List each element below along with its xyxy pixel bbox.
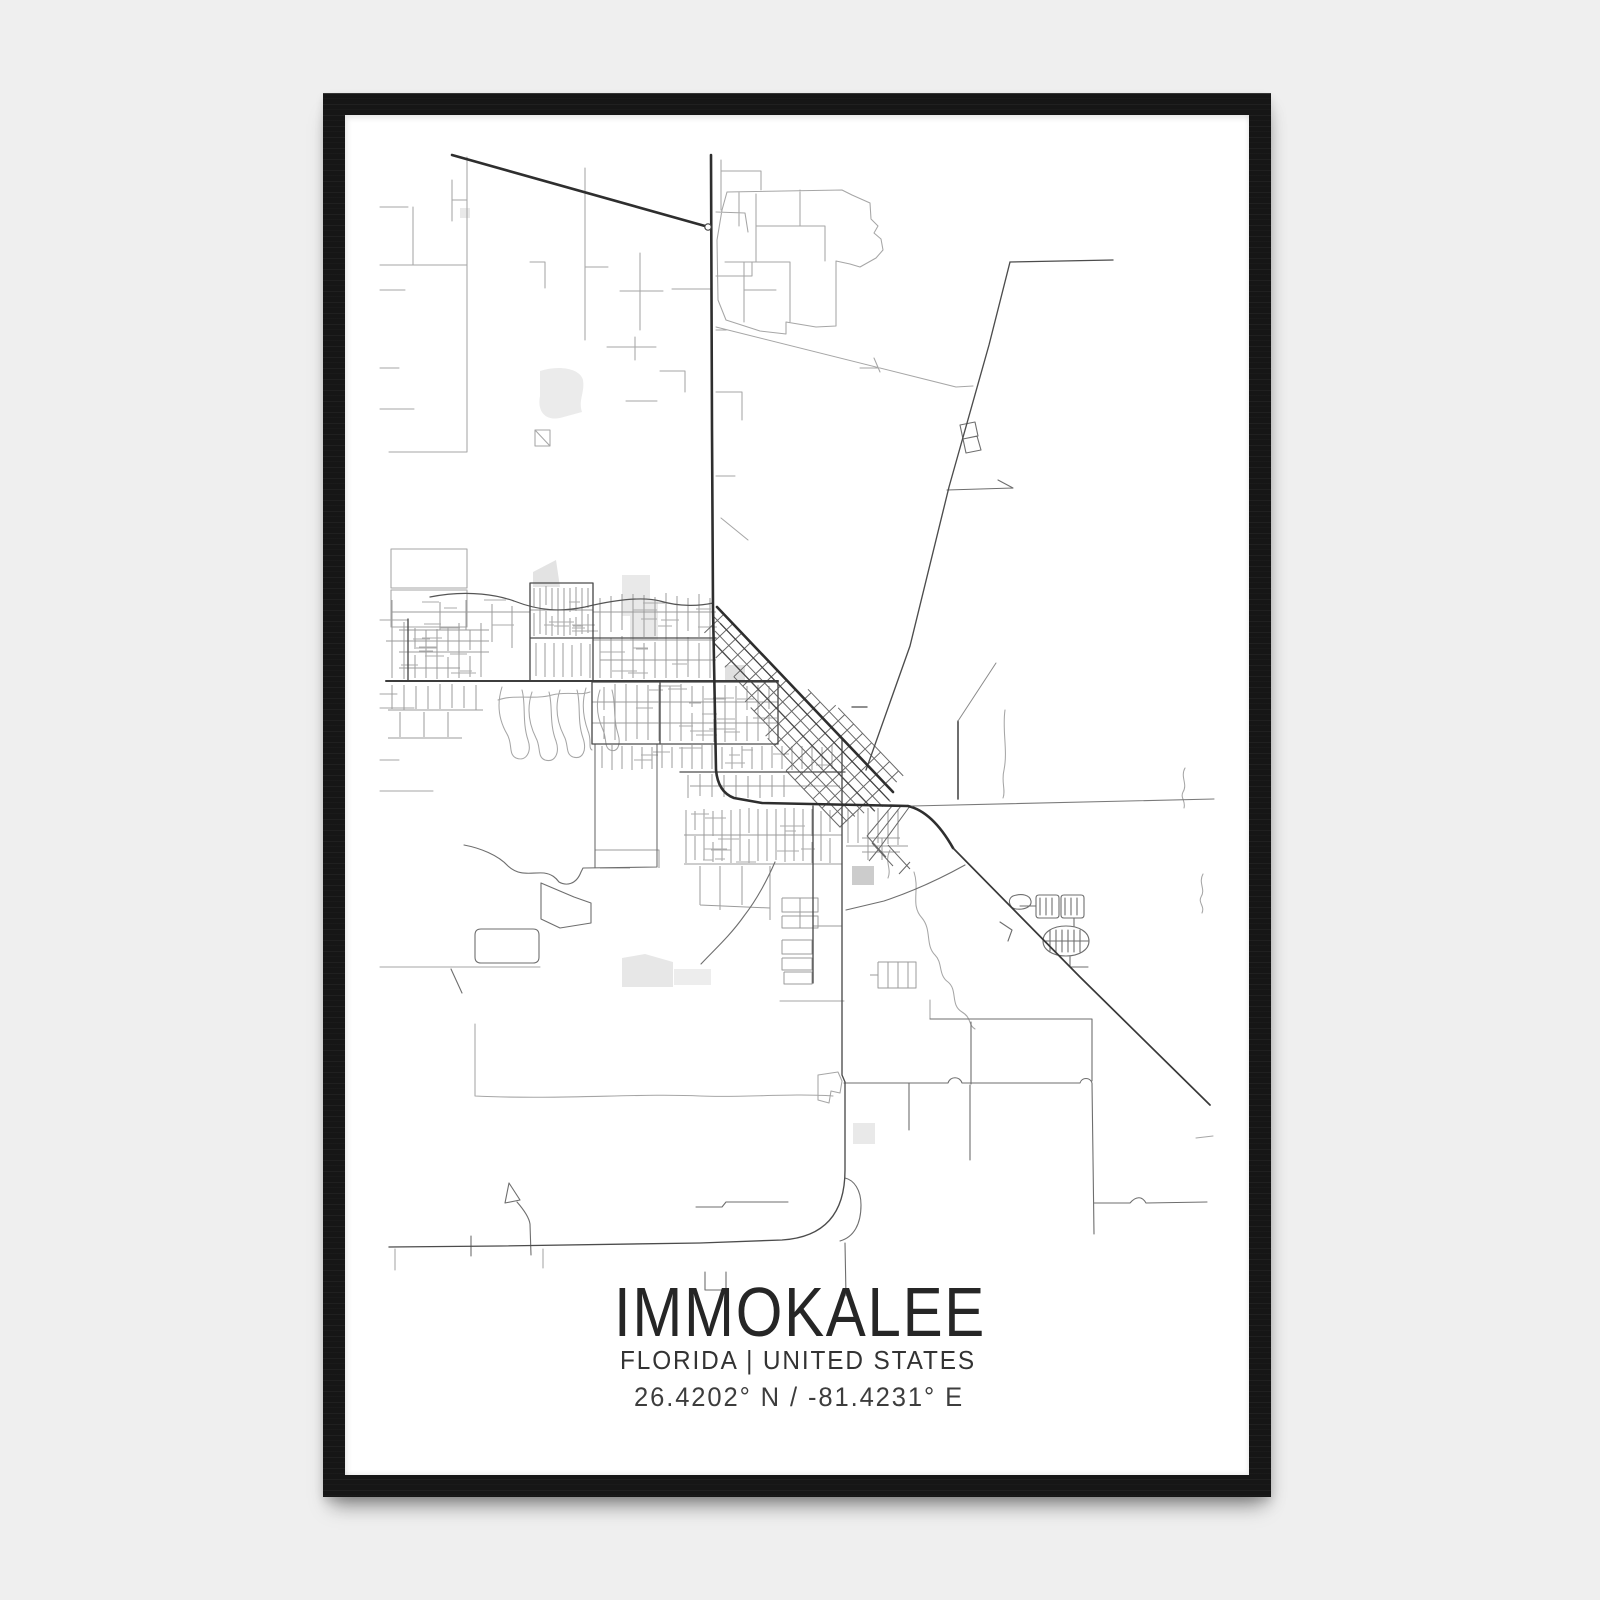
- svg-text:FLORIDA | UNITED STATES: FLORIDA | UNITED STATES: [620, 1345, 976, 1375]
- svg-text:IMMOKALEE: IMMOKALEE: [614, 1273, 986, 1351]
- svg-text:26.4202° N / -81.4231° E: 26.4202° N / -81.4231° E: [634, 1382, 964, 1412]
